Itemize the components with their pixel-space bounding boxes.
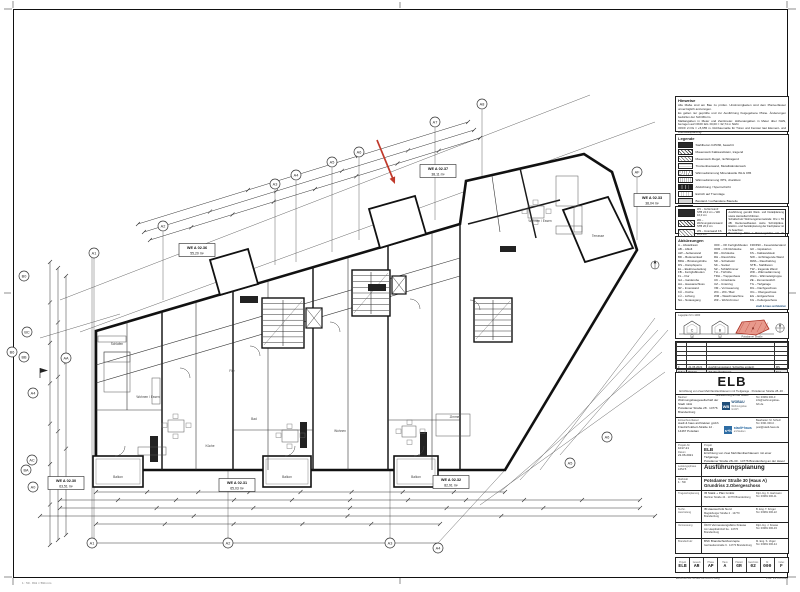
kitchen-counter — [150, 436, 158, 462]
drawing-code-segment: IndexF — [775, 558, 788, 572]
svg-text:AF: AF — [635, 170, 641, 174]
svg-text:A3: A3 — [388, 541, 393, 545]
architect-row: Entwurfsverfasser stadt & haus architekt… — [676, 417, 788, 442]
room-label: Wohnen / Essen — [528, 219, 552, 223]
consultant-address: Magdeburger Straße 2 · 14770 Brandenburg — [704, 512, 752, 519]
drawing-code-value: 000 — [761, 564, 774, 569]
room-label: Flur — [229, 369, 235, 373]
notes-box: Hinweise Alle Maße sind am Bau zu prüfen… — [675, 96, 789, 132]
client-logo: WB WOBAU Wohnungsbau GmbH — [722, 395, 754, 417]
svg-text:A1: A1 — [90, 541, 95, 545]
project-desc-2: Potsdamer Straße 28–30 · 14776 Brandenbu… — [704, 460, 786, 463]
svg-text:BB: BB — [21, 355, 27, 359]
cross-hatch-swatch — [678, 156, 693, 162]
phase-small: LPH 5 — [678, 468, 699, 472]
north-arrow-icon — [651, 260, 659, 269]
drawing-code-segment: GewerkAR — [690, 558, 704, 572]
drawing-code-value: 02 — [747, 564, 760, 569]
wall-type-swatch — [678, 209, 695, 217]
svg-text:WE A 02.30: WE A 02.30 — [56, 479, 76, 483]
drawing-sheet: ELBWohnen / EssenSchlafenKücheBadFlurWoh… — [0, 0, 800, 592]
legend-label: Trockenbauwand, Metallständerwerk — [696, 164, 746, 168]
architect-address: Friedrich-Ebert-Straße 12 · 14467 Potsda… — [678, 426, 720, 434]
room-label: Terrasse — [592, 234, 604, 238]
legend-label: Wärmedämmung XPS, druckfest — [696, 178, 741, 182]
wall-type-swatch — [678, 220, 695, 228]
client-contact-2: info@wohnungsbau-brb.de — [756, 399, 786, 406]
key-plan-box: Lageplan M 1:1000 CBAPotsdamer Straße283… — [675, 312, 789, 339]
svg-text:BC: BC — [24, 330, 30, 334]
svg-text:A0: A0 — [31, 485, 36, 489]
abbreviation-entry: NA – Notausgang — [678, 299, 714, 303]
kitchen-counter — [368, 284, 386, 291]
svg-text:BA: BA — [23, 468, 29, 472]
room-label: Zimmer — [450, 415, 462, 419]
drawing-code-segment: PlanartGR — [733, 558, 747, 572]
svg-text:65,03 m²: 65,03 m² — [230, 487, 244, 491]
consultant-address: Am Hauptbahnhof 3a · 14776 Brandenburg — [704, 528, 752, 535]
legend-label: Mauerwerk Kalksandstein, tragend — [696, 150, 744, 154]
consultants-rows: TragwerksplanungIB Statik + Plan GmbHBer… — [676, 490, 788, 554]
phase-title: Ausführungsplanung — [704, 465, 786, 471]
client-row: Bauherr Wohnungsbaugesellschaft der Stad… — [676, 394, 788, 417]
abbreviation-column: A – AbstellraumAB – AbluftAW – Außenwand… — [678, 244, 714, 303]
architect-contact-2: Tel. 0331 000-0 · post@stadt-haus.de — [756, 422, 786, 429]
architect-logo: s+h stadt+haus architekten — [722, 418, 754, 442]
wall-type-label: W1 – Außenwand STB 24,0 cm + WD 16,0 cm — [697, 208, 722, 217]
drawing-code-value: AR — [690, 564, 703, 569]
svg-text:C: C — [691, 328, 694, 332]
consultant-contact: Tel. 03381 000-11 — [756, 495, 786, 498]
project-row: Projekt-Nr. 1017-21 Datum 21.06.2021 Pro… — [676, 442, 788, 463]
svg-text:A: A — [752, 326, 755, 330]
balcony-3 — [394, 456, 438, 487]
legend-label: Mauerwerk Ziegel, nichttragend — [696, 157, 739, 161]
architect-logo-icon: s+h — [724, 426, 732, 434]
revision-table-box: F21.06.2021Ausführungsstand, Schächte er… — [675, 341, 789, 369]
drawing-code-segment: Geschoss02 — [747, 558, 761, 572]
legend-row: Bestand / vorhandene Bauteile — [678, 198, 786, 204]
legend-label: Estrich auf Trennlage — [696, 192, 725, 196]
survey-flag-icon — [40, 368, 48, 378]
legend-row: Mauerwerk Ziegel, nichttragend — [678, 156, 786, 162]
footer-file: ELB-AR-AP-A-GR-02-000-F.dwg — [676, 576, 720, 580]
drawing-code-row: ProjektELBGewerkARPhaseAPHausAPlanartGRG… — [676, 558, 788, 572]
legend-note-line: Schallschutz Wohnungstrennwände: R'w ≥ 5… — [728, 218, 784, 232]
wall-type-row: W2 – Wohnungstrennwand STB 20,0 cm — [678, 219, 722, 228]
abbreviations-box: Abkürzungen A – AbstellraumAB – AbluftAW… — [675, 236, 789, 310]
drawing-code-segment: Nr.000 — [761, 558, 775, 572]
room-label: Wohnen / Essen — [136, 395, 160, 399]
svg-text:A4: A4 — [294, 173, 299, 177]
consultant-row: VermessungÖbVI Vermessungsbüro KrauseAm … — [676, 522, 788, 538]
consultant-row: Techn. AusrüstungIB Haustechnik NordMagd… — [676, 506, 788, 522]
consultant-row: TragwerksplanungIB Statik + Plan GmbHBer… — [676, 490, 788, 506]
svg-text:AC: AC — [29, 458, 35, 462]
svg-text:WE A 02.37: WE A 02.37 — [428, 167, 448, 171]
wall-type-label: W2 – Wohnungstrennwand STB 20,0 cm — [697, 219, 722, 228]
svg-text:A4: A4 — [436, 546, 441, 550]
svg-text:WE A 02.36: WE A 02.36 — [187, 246, 207, 250]
room-label: Küche — [205, 444, 214, 448]
grid-hatch-swatch — [678, 191, 693, 197]
consultant-role: Techn. Ausrüstung — [678, 508, 699, 514]
svg-text:38,11 m²: 38,11 m² — [431, 173, 445, 177]
svg-text:A4: A4 — [31, 391, 36, 395]
svg-text:A5: A5 — [568, 461, 573, 465]
svg-text:A6: A6 — [605, 435, 610, 439]
consultant-role: Tragwerksplanung — [678, 492, 699, 495]
drawing-code-box: ProjektELBGewerkARPhaseAPHausAPlanartGRG… — [675, 557, 789, 573]
red-marker-arrow — [377, 140, 395, 184]
drawing-code-value: A — [718, 564, 731, 569]
street-label: Potsdamer Straße — [741, 334, 763, 338]
legend-row: Abdichtung / Sperrschicht — [678, 184, 786, 190]
drawing-code-segment: HausA — [718, 558, 732, 572]
abbreviation-entry: WZ – Wohnzimmer — [714, 299, 750, 303]
wave-hatch-swatch — [678, 177, 693, 183]
dots-hatch-swatch — [678, 170, 693, 176]
room-label: Wohnen — [334, 429, 346, 433]
svg-text:B0: B0 — [22, 274, 27, 278]
svg-text:AA: AA — [63, 356, 69, 360]
legend-row: Wärmedämmung Mineralwolle WLG 035 — [678, 170, 786, 176]
legend-row: Stahlbeton C25/30, bewehrt — [678, 142, 786, 148]
room-label: Balkon — [113, 475, 123, 479]
light-hatch-swatch — [678, 163, 693, 169]
key-plan-drawing: CBAPotsdamer Straße2830 — [676, 317, 788, 338]
svg-text:B6: B6 — [10, 350, 15, 354]
svg-text:A5: A5 — [330, 160, 335, 164]
legend-note-line: Ausführung gemäß Werk- und Detailplanung… — [728, 211, 784, 218]
consultant-row: BrandschutzBSK BrandschutzkonzepteGertra… — [676, 538, 788, 554]
consultant-address: Berliner Straße 44 · 14770 Brandenburg — [704, 496, 752, 499]
dark2-hatch-swatch — [678, 184, 693, 190]
project-code: ELB — [676, 375, 788, 389]
footer-plot-date: Plot: 21.06.2021 — [766, 576, 788, 580]
project-date: 21.06.2021 — [678, 454, 699, 458]
svg-text:55,20 m²: 55,20 m² — [190, 252, 204, 256]
svg-text:38,04 m²: 38,04 m² — [645, 202, 659, 206]
legend-row: Trockenbauwand, Metallständerwerk — [678, 163, 786, 169]
balcony-2 — [263, 456, 311, 487]
svg-text:WE A 02.33: WE A 02.33 — [642, 196, 662, 200]
consultant-contact: Tel. 03381 000-33 — [756, 527, 786, 530]
drawing-code-segment: PhaseAP — [704, 558, 718, 572]
gray-hatch-swatch — [678, 198, 693, 204]
solid-hatch-swatch — [678, 142, 693, 148]
consultant-contact: Tel. 03381 000-22 — [756, 511, 786, 514]
drawing-code-value: GR — [733, 564, 746, 569]
legend-label: Wärmedämmung Mineralwolle WLG 035 — [696, 171, 752, 175]
svg-text:A3: A3 — [273, 182, 278, 186]
consultant-role: Brandschutz — [678, 540, 699, 543]
svg-text:A2: A2 — [161, 224, 166, 228]
svg-text:A8: A8 — [480, 102, 485, 106]
drawing-code-value: ELB — [676, 564, 689, 569]
footer-scale: 1 : 50 · 841 × 594 mm — [22, 581, 51, 585]
consultant-contact: Tel. 03381 000-44 — [756, 543, 786, 546]
abbreviation-columns: A – AbstellraumAB – AbluftAW – Außenwand… — [678, 244, 786, 303]
wall-types-box: W1 – Außenwand STB 24,0 cm + WD 16,0 cmW… — [675, 206, 789, 234]
scale-value: 1 : 50 — [678, 481, 699, 485]
legend-row: Wärmedämmung XPS, druckfest — [678, 177, 786, 183]
legend-title: Legende — [678, 136, 786, 141]
svg-text:A1: A1 — [92, 251, 97, 255]
consultant-address: Gertraudenstraße 9 · 14770 Brandenburg — [704, 544, 752, 547]
abbreviation-column: OKF – OK FertigfußbodenOKR – OK Rohdecke… — [714, 244, 750, 303]
wall-type-row: W1 – Außenwand STB 24,0 cm + WD 16,0 cm — [678, 208, 722, 217]
kitchen-counter — [300, 422, 307, 448]
drawing-code-segment: ProjektELB — [676, 558, 690, 572]
title-block: ELB Errichtung von zwei Mehrfamilienhäus… — [675, 372, 789, 554]
phase-row: Leistungsphase LPH 5 Ausführungsplanung — [676, 463, 788, 476]
room-label: Balkon — [282, 475, 292, 479]
plan-title: Potsdamer Straße 30 (Haus A) Grundriss 2… — [704, 478, 786, 488]
kitchen-counter — [420, 432, 427, 456]
svg-text:A2: A2 — [226, 541, 231, 545]
abbreviation-entry: KG – Kellergeschoss — [750, 299, 786, 303]
balcony-1 — [93, 456, 143, 487]
kitchen-counter — [240, 296, 258, 303]
legend-row: Estrich auf Trennlage — [678, 191, 786, 197]
room-label: Balkon — [411, 475, 421, 479]
client-logo-sub: Wohnungsbau GmbH — [731, 405, 754, 411]
plan-content-row: Maßstab 1 : 50 Potsdamer Straße 30 (Haus… — [676, 476, 788, 490]
client-address: Potsdamer Straße 28 · 14776 Brandenburg — [678, 407, 720, 415]
svg-text:WE A 02.31: WE A 02.31 — [227, 481, 247, 485]
svg-text:82,91 m²: 82,91 m² — [444, 484, 458, 488]
room-label: Schlafen — [111, 342, 124, 346]
drawing-code-value: F — [775, 564, 788, 569]
legend-label: Stahlbeton C25/30, bewehrt — [696, 143, 734, 147]
room-label: Bad — [251, 417, 257, 421]
kitchen-counter — [500, 246, 516, 252]
diag-hatch-swatch — [678, 149, 693, 155]
svg-text:A7: A7 — [433, 120, 438, 124]
legend-label: Abdichtung / Sperrschicht — [696, 185, 731, 189]
legend-box: Legende Stahlbeton C25/30, bewehrtMauerw… — [675, 134, 789, 204]
svg-text:A6: A6 — [357, 150, 362, 154]
consultant-role: Vermessung — [678, 524, 699, 527]
architect-logo-small: stadt & haus architekten — [756, 305, 786, 308]
legend-label: Bestand / vorhandene Bauteile — [696, 199, 738, 203]
abbreviation-column: F30/F90 – FeuerwiderstandGK – Gipskarton… — [750, 244, 786, 303]
svg-text:WE A 02.32: WE A 02.32 — [441, 478, 461, 482]
client-logo-icon: WB — [722, 402, 730, 410]
drawing-code-value: AP — [704, 564, 717, 569]
architect-logo-sub: architekten — [734, 430, 752, 433]
legend-row: Mauerwerk Kalksandstein, tragend — [678, 149, 786, 155]
revision-table: F21.06.2021Ausführungsstand, Schächte er… — [676, 342, 788, 375]
svg-text:63,51 m²: 63,51 m² — [59, 485, 73, 489]
